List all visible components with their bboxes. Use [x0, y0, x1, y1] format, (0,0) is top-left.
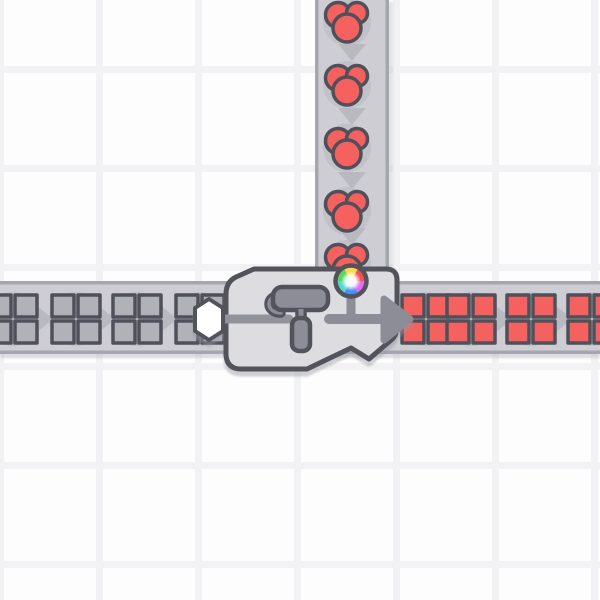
- square-quadrant: [0, 321, 11, 343]
- square-quadrant: [52, 295, 74, 317]
- game-viewport: [0, 0, 600, 600]
- color-wheel-icon[interactable]: [336, 266, 367, 297]
- berry-lobe: [333, 14, 361, 42]
- square-quadrant: [473, 295, 495, 317]
- belt-edge-right: [386, 0, 390, 312]
- square-quadrant: [78, 321, 100, 343]
- square-quadrant: [533, 321, 555, 343]
- square-quadrant: [594, 295, 600, 317]
- roller-body: [273, 287, 328, 310]
- square-quadrant: [113, 295, 135, 317]
- game-canvas: [0, 0, 600, 600]
- berry-lobe: [333, 140, 361, 168]
- square-quadrant: [113, 321, 135, 343]
- square-quadrant: [15, 295, 37, 317]
- square-quadrant: [52, 321, 74, 343]
- roller-handle: [292, 318, 310, 351]
- input-socket-hexagon: [195, 299, 223, 340]
- square-quadrant: [139, 295, 161, 317]
- square-quadrant: [0, 295, 11, 317]
- square-quadrant: [568, 295, 590, 317]
- square-quadrant: [447, 321, 469, 343]
- color-wheel-center: [341, 271, 361, 291]
- belt-edge-left: [315, 0, 319, 312]
- berry-lobe: [333, 77, 361, 105]
- square-quadrant: [507, 295, 529, 317]
- square-quadrant: [473, 321, 495, 343]
- square-quadrant: [447, 295, 469, 317]
- square-quadrant: [15, 321, 37, 343]
- square-quadrant: [139, 321, 161, 343]
- berry-lobe: [333, 203, 361, 231]
- square-quadrant: [507, 321, 529, 343]
- square-quadrant: [533, 295, 555, 317]
- square-quadrant: [78, 295, 100, 317]
- square-quadrant: [594, 321, 600, 343]
- square-quadrant: [568, 321, 590, 343]
